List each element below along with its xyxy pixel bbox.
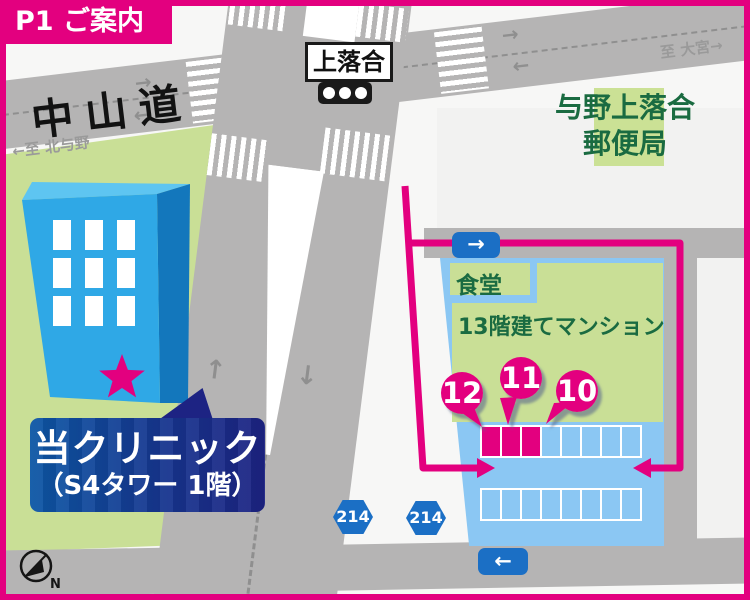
space-number-11: 11 xyxy=(499,356,543,400)
building-side xyxy=(157,184,190,403)
clinic-name: 当クリニック xyxy=(30,428,265,471)
access-map: → ← → ← 中山道 ←至 北与野 至 大宮→ ↑ ↓ 食堂 13階建てマンシ… xyxy=(0,0,750,600)
clinic-location: （S4タワー 1階） xyxy=(30,471,265,502)
traffic-signal-icon xyxy=(318,82,372,104)
space-number-12: 12 xyxy=(440,371,484,415)
compass: N xyxy=(14,546,68,592)
signal-lamp xyxy=(323,87,335,99)
clinic-building-illustration xyxy=(20,178,195,410)
post-office-label: 与野上落合 郵便局 xyxy=(505,90,745,162)
post-office-line2: 郵便局 xyxy=(505,126,745,162)
clinic-callout: 当クリニック （S4タワー 1階） xyxy=(30,418,265,512)
compass-north-label: N xyxy=(50,577,61,592)
signal-lamp xyxy=(355,87,367,99)
compass-needle xyxy=(25,560,44,577)
signal-lamp xyxy=(339,87,351,99)
intersection-sign: 上落合 xyxy=(305,42,393,82)
space-number-10: 10 xyxy=(555,369,599,413)
building-windows xyxy=(53,220,135,326)
post-office-line1: 与野上落合 xyxy=(505,90,745,126)
p1-title-badge: P1 ご案内 xyxy=(0,0,172,44)
